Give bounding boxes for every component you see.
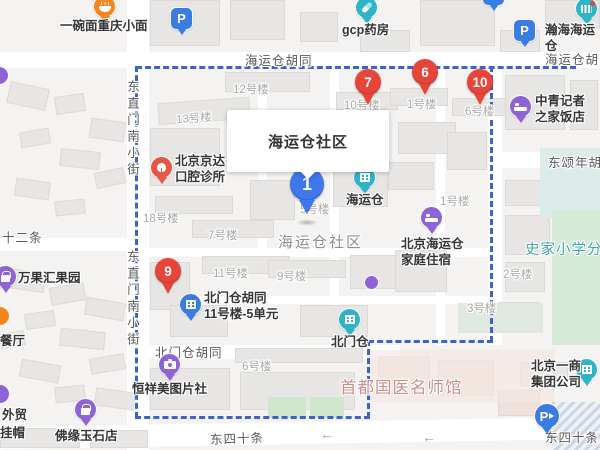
result-marker-6[interactable]: 6: [412, 59, 438, 85]
street-label-dongsongnian-hutong: 东颂年胡同: [548, 152, 600, 171]
building-block: [250, 180, 295, 220]
building-block: [14, 178, 51, 201]
marker-shadow: [296, 219, 318, 226]
building-label: 1号楼: [440, 193, 469, 209]
camera-icon[interactable]: [159, 354, 180, 375]
building-label: 2号楼: [503, 266, 532, 282]
poi-label-family-stay: 北京海运仓 家庭住宿: [401, 237, 464, 268]
building-label: 9号楼: [277, 268, 306, 284]
building-block: [94, 167, 127, 189]
poi-label-journalist-hotel: 中青记者 之家饭店: [535, 94, 585, 125]
building-label: 7号楼: [208, 227, 237, 243]
poi-label-gcp-pharmacy: gcp药房: [342, 23, 389, 39]
building-label: 18号楼: [143, 210, 179, 226]
hotel-bed-icon[interactable]: [510, 96, 531, 117]
street-label-haiyuncang-hutong: 海运仓胡同: [245, 50, 313, 69]
building-block: [59, 148, 101, 170]
parking-entrance-icon[interactable]: P: [535, 404, 559, 428]
poi-icon[interactable]: [0, 385, 9, 403]
poi-label-partial-waimao: 外贸: [2, 408, 27, 424]
building-block: [84, 297, 127, 322]
building-block: [230, 0, 285, 40]
poi-label-hanhai: 瀚海海运仓: [545, 23, 600, 54]
street-label-dongsishitiao: 东四十条: [210, 427, 265, 448]
poi-label-fruit-shop: 万果汇果园: [18, 271, 81, 287]
poi-label-beimencang: 北门仓: [331, 335, 369, 351]
street-label-shi-er-tiao: 十二条: [2, 227, 43, 246]
building-block: [89, 353, 126, 375]
region-boundary: [368, 340, 493, 343]
building-block: [300, 12, 338, 42]
result-marker-7[interactable]: 7: [355, 69, 381, 95]
green-area: [268, 397, 306, 418]
building-block: [420, 0, 495, 46]
poi-label-beimencang-unit: 北门仓胡同 11号楼-5单元: [204, 291, 278, 322]
road-direction-arrow: ←: [422, 429, 436, 445]
building-label: 1号楼: [407, 96, 436, 112]
poi-label-dental-clinic: 北京京达 口腔诊所: [175, 154, 225, 185]
noodles-icon[interactable]: [94, 0, 115, 17]
building-block: [6, 81, 50, 111]
poi-icon[interactable]: [365, 276, 378, 289]
area-label-medical-hall: 首都国医名师馆: [340, 374, 463, 398]
info-window[interactable]: 海运仓社区: [227, 110, 389, 172]
area-label-school: 史家小学分校: [525, 238, 600, 259]
road-direction-arrow: ←: [320, 426, 334, 442]
street-label-dongzhimen-nan-xiaojie-2: 东直门南小街: [123, 250, 142, 349]
building-icon[interactable]: [339, 309, 360, 330]
poi-label-yishang-group: 北京一商 集团公司: [531, 359, 581, 390]
map-canvas[interactable]: 海运仓胡同 海运仓胡同 东直门南小街 东直门南小街 十二条 北门仓胡同 东四十条…: [0, 0, 600, 450]
dental-icon[interactable]: [151, 157, 172, 178]
building-label: 3号楼: [467, 300, 496, 316]
street-label-dongzhimen-nan-xiaojie: 东直门南小街: [123, 80, 142, 179]
poi-label-jade-shop: 佛缘玉石店: [55, 429, 118, 445]
poi-label-haiyuncang: 海运仓: [346, 193, 384, 209]
poi-label-noodle-shop: 一碗面重庆小面: [60, 19, 148, 35]
building-block: [19, 128, 51, 149]
poi-label-partial-restaurant: 餐厅: [0, 334, 25, 350]
building-block: [19, 359, 62, 384]
building-icon[interactable]: [180, 294, 201, 315]
poi-label-partial-guamao: 挂帽: [0, 426, 25, 442]
parking-icon[interactable]: P: [514, 20, 535, 41]
parking-icon[interactable]: P: [171, 8, 192, 29]
building-block: [447, 132, 487, 170]
shop-bag-icon[interactable]: [75, 399, 96, 420]
poi-icon[interactable]: [0, 307, 9, 325]
result-marker-10[interactable]: 10: [467, 69, 493, 95]
pharmacy-icon[interactable]: [356, 0, 377, 18]
green-area: [310, 397, 344, 418]
building-label: 6号楼: [242, 358, 271, 374]
building-label: 6号楼: [465, 103, 494, 119]
poi-icon[interactable]: [0, 67, 8, 84]
hotel-bed-icon[interactable]: [421, 207, 442, 228]
building-block: [59, 328, 106, 351]
info-window-title: 海运仓社区: [268, 131, 348, 152]
building-block: [89, 118, 126, 143]
building-block: [24, 310, 56, 330]
building-label: 12号楼: [233, 81, 269, 97]
school-grounds-green: [552, 210, 600, 345]
building-block: [54, 93, 86, 115]
area-label-haiyuncang-community: 海运仓社区: [278, 231, 363, 252]
result-marker-9[interactable]: 9: [155, 258, 181, 284]
building-block: [54, 198, 85, 216]
region-boundary: [135, 416, 370, 419]
region-boundary: [136, 66, 576, 69]
poi-label-photo-studio: 恒祥美图片社: [132, 382, 207, 398]
parking-icon[interactable]: [483, 0, 504, 5]
building-label: 11号楼: [213, 265, 248, 281]
building-block: [388, 162, 434, 190]
building-label: 13号楼: [175, 109, 212, 127]
